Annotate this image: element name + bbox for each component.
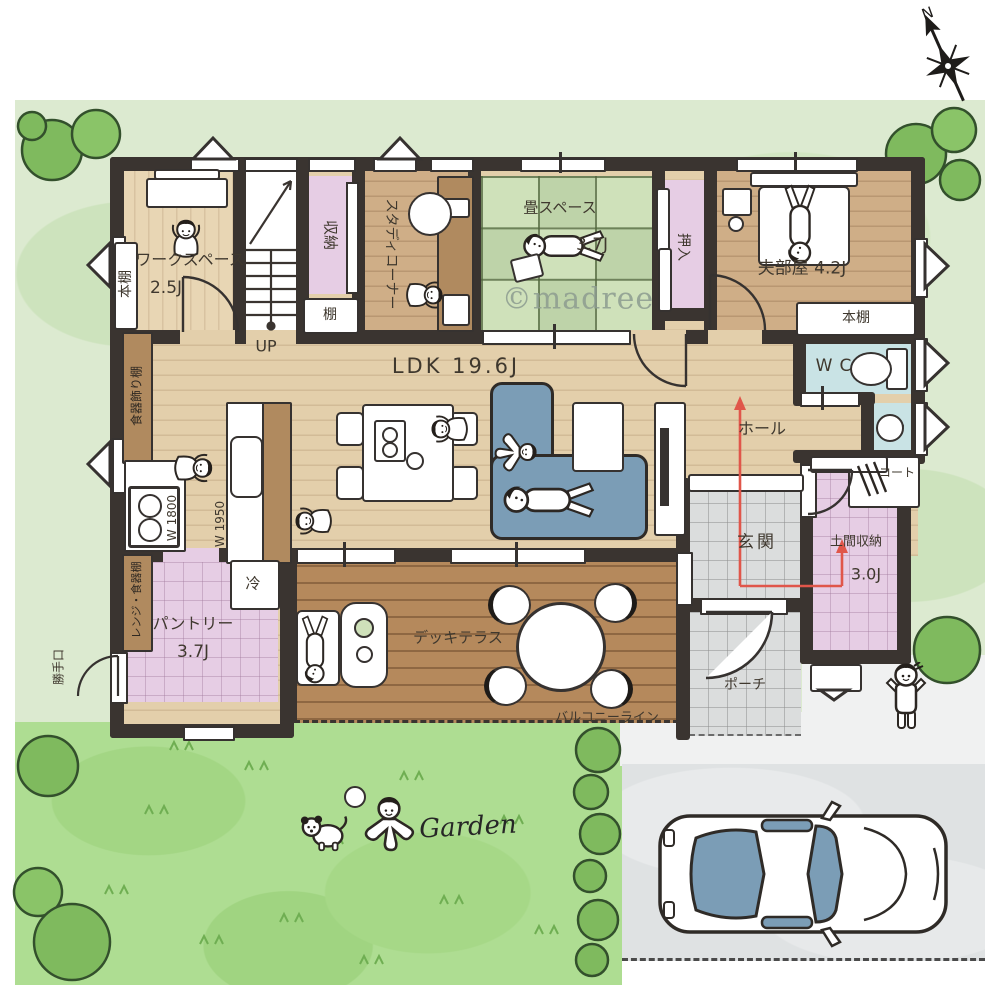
label-wc: WC	[816, 356, 859, 376]
label-porch: ポーチ	[724, 674, 766, 694]
label-workspace-area: 2.5J	[150, 278, 182, 298]
watermark: ©madree	[502, 282, 654, 317]
label-tatami-area: 3.7J	[576, 235, 608, 255]
label-tatami: 畳スペース	[523, 197, 596, 218]
label-garden: Garden	[419, 809, 518, 844]
door-arc-bedroom	[710, 275, 765, 330]
person-dining	[424, 406, 470, 452]
label-genkan: 玄関	[737, 528, 777, 553]
label-back-door: 勝手口	[50, 649, 67, 685]
label-bookshelf-left: 本棚	[115, 270, 135, 298]
garden-ball	[344, 786, 366, 808]
door-arc-workspace	[183, 277, 238, 332]
label-stairs-up: UP	[255, 337, 276, 356]
label-balcony-line: バルコニーライン	[555, 707, 659, 726]
label-counter-w1950: W 1950	[213, 501, 227, 547]
label-range-cupboard: レンジ・食器棚	[128, 562, 144, 639]
label-husband-room: 夫部屋 4.2J	[758, 254, 846, 279]
label-workspace: ワークスペース	[135, 246, 245, 270]
door-arc-front	[706, 612, 772, 678]
label-counter-w1800: W 1800	[165, 495, 179, 541]
label-doma: 土間収納	[830, 531, 882, 550]
label-deck-terrace: デッキテラス	[413, 627, 503, 648]
person-walkway	[884, 662, 928, 734]
door-arc-doma	[808, 470, 852, 514]
dog	[298, 808, 352, 854]
door-arc-tatami	[634, 334, 686, 386]
label-pantry-area: 3.7J	[177, 642, 209, 662]
label-study-corner: スタディコーナー	[382, 198, 402, 309]
floor-plan-illustration: N ワークスペース 2.5J 本棚 UP 収納 棚 スタディコーナー 畳スペース…	[0, 0, 1000, 1000]
label-display-cupboard: 食器飾り棚	[128, 366, 145, 426]
label-closet: 収納	[321, 220, 342, 250]
person-kitchen	[172, 444, 220, 492]
label-oshiire: 押入	[674, 233, 694, 261]
label-shelf: 棚	[323, 304, 337, 324]
label-bedroom-bookshelf: 本棚	[842, 307, 870, 327]
door-arc-back	[78, 656, 118, 696]
label-coat: コート	[879, 464, 915, 481]
person-island-counter	[288, 498, 334, 544]
stairs	[246, 181, 296, 330]
label-doma-area: 3.0J	[851, 565, 881, 584]
person-deck-bench	[297, 614, 333, 686]
label-fridge: 冷	[245, 573, 260, 594]
label-pantry: パントリー	[153, 610, 234, 634]
person-study	[404, 272, 450, 318]
label-hall: ホール	[738, 415, 786, 439]
person-sofa-sitting	[494, 428, 542, 476]
person-garden-kid	[358, 790, 420, 852]
person-sofa-lying	[500, 478, 596, 522]
label-ldk: LDK 19.6J	[392, 354, 520, 378]
